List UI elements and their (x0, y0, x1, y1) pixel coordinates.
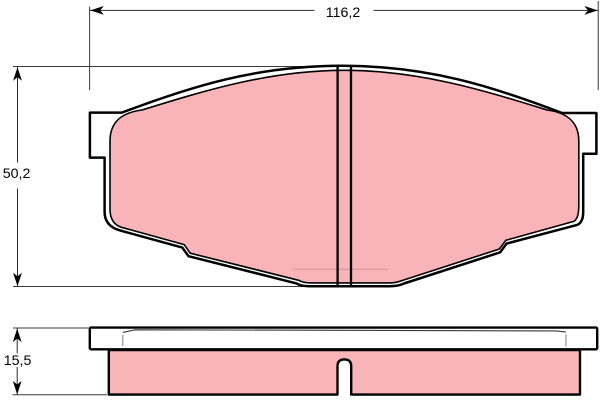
svg-text:50,2: 50,2 (3, 166, 31, 182)
svg-text:116,2: 116,2 (326, 5, 361, 21)
svg-text:15,5: 15,5 (4, 353, 32, 369)
